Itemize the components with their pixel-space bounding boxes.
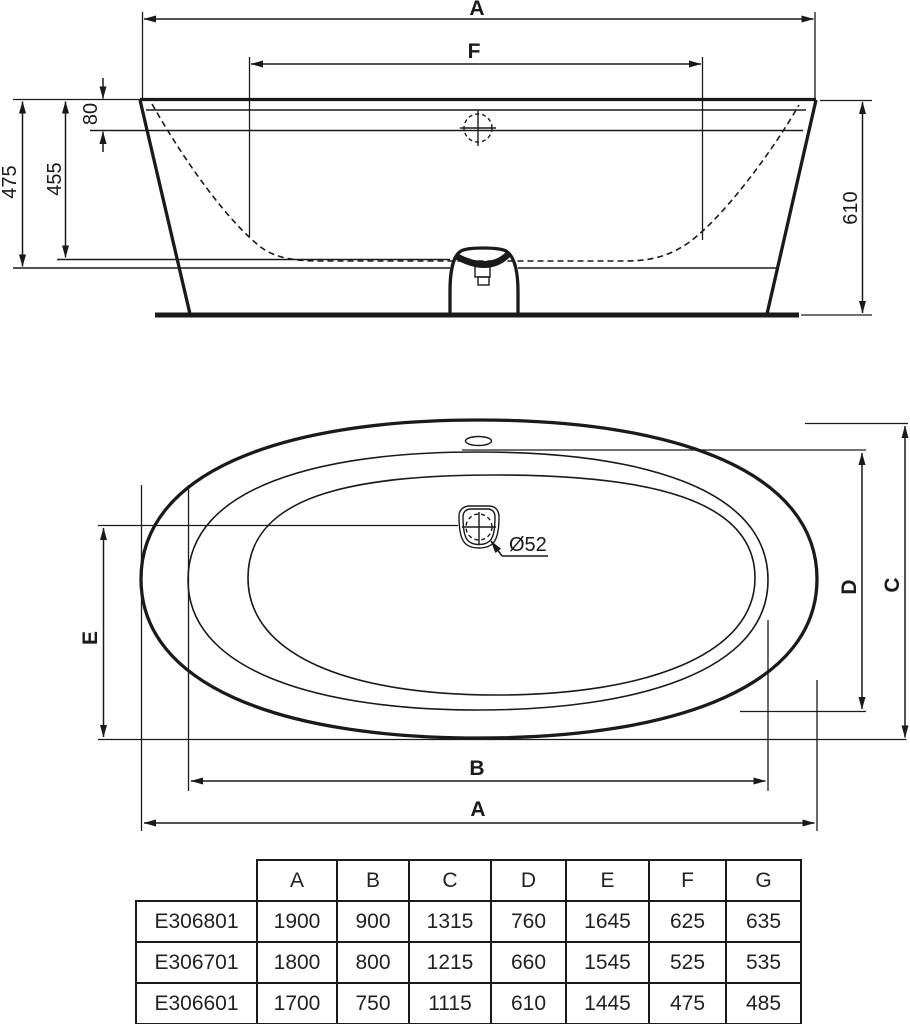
drain-diameter-label: Ø52 [509, 534, 547, 556]
value-cell: 1545 [566, 942, 649, 983]
right-wall [767, 100, 816, 314]
col-header-g: G [726, 860, 801, 901]
col-header-b: B [337, 860, 409, 901]
value-cell: 1215 [409, 942, 491, 983]
dimension-475: 475 [0, 102, 23, 267]
value-cell: 900 [337, 901, 409, 942]
value-cell: 1900 [257, 901, 337, 942]
left-wall [140, 100, 190, 314]
waste-spout [453, 252, 510, 268]
dimension-455: 455 [44, 102, 66, 258]
dim-label-c: C [881, 577, 904, 592]
waste-foot [478, 277, 489, 285]
value-cell: 800 [337, 942, 409, 983]
value-cell: 1700 [257, 983, 337, 1024]
model-code: E306601 [136, 983, 257, 1024]
value-cell: 625 [649, 901, 726, 942]
dim-label-d: D [838, 579, 861, 594]
plan-view: Ø52 E D C B [79, 420, 908, 831]
model-code: E306701 [136, 942, 257, 983]
dim-label-475: 475 [0, 165, 21, 198]
technical-drawing-page: A F 80 455 475 610 [0, 0, 910, 1024]
col-header-e: E [566, 860, 649, 901]
waste-fitting [450, 248, 518, 314]
value-cell: 610 [491, 983, 566, 1024]
dimension-table: A B C D E F G E306801 1900 900 1315 760 … [135, 859, 802, 1024]
value-cell: 660 [491, 942, 566, 983]
col-header-a: A [257, 860, 337, 901]
rim-outer-contour [141, 420, 817, 738]
bathtub-drawing: A F 80 455 475 610 [0, 0, 910, 855]
value-cell: 535 [726, 942, 801, 983]
dim-label-f: F [468, 40, 481, 63]
dim-label-b: B [469, 757, 484, 780]
value-cell: 475 [649, 983, 726, 1024]
dimension-a-plan: A [144, 798, 815, 823]
model-code: E306801 [136, 901, 257, 942]
value-cell: 1645 [566, 901, 649, 942]
dimension-610: 610 [801, 101, 872, 316]
drain-symbol [459, 506, 499, 548]
table-row: E306601 1700 750 1115 610 1445 475 485 [136, 983, 801, 1024]
col-header-f: F [649, 860, 726, 901]
dimension-e-plan: E [79, 528, 104, 737]
dim-label-80: 80 [80, 103, 102, 125]
value-cell: 1315 [409, 901, 491, 942]
col-header-d: D [491, 860, 566, 901]
value-cell: 750 [337, 983, 409, 1024]
drain-diameter-callout: Ø52 [491, 534, 548, 556]
overflow-symbol [460, 110, 496, 146]
dim-label-a-plan: A [470, 798, 485, 821]
dimension-80: 80 [80, 78, 103, 152]
table-row: E306801 1900 900 1315 760 1645 625 635 [136, 901, 801, 942]
table-row: E306701 1800 800 1215 660 1545 525 535 [136, 942, 801, 983]
elevation-view: A F 80 455 475 610 [0, 0, 872, 315]
value-cell: 525 [649, 942, 726, 983]
dim-label-455: 455 [44, 162, 66, 195]
value-cell: 1800 [257, 942, 337, 983]
rim-inner-contour [188, 452, 768, 710]
basin-contour [248, 475, 755, 695]
table-header-row: A B C D E F G [136, 860, 801, 901]
col-header-c: C [409, 860, 491, 901]
dim-label-e: E [79, 631, 102, 645]
value-cell: 1115 [409, 983, 491, 1024]
table-corner-cell [136, 860, 257, 901]
dim-label-610: 610 [840, 191, 862, 224]
dimension-c-plan: C [881, 426, 905, 738]
value-cell: 635 [726, 901, 801, 942]
value-cell: 1445 [566, 983, 649, 1024]
dimension-d-plan: D [838, 453, 862, 709]
value-cell: 485 [726, 983, 801, 1024]
dimension-f-elevation: F [250, 40, 703, 240]
value-cell: 760 [491, 901, 566, 942]
dim-label-a-elev: A [469, 0, 484, 20]
dimension-b-plan: B [191, 757, 766, 781]
overflow-slot-icon [466, 437, 492, 446]
